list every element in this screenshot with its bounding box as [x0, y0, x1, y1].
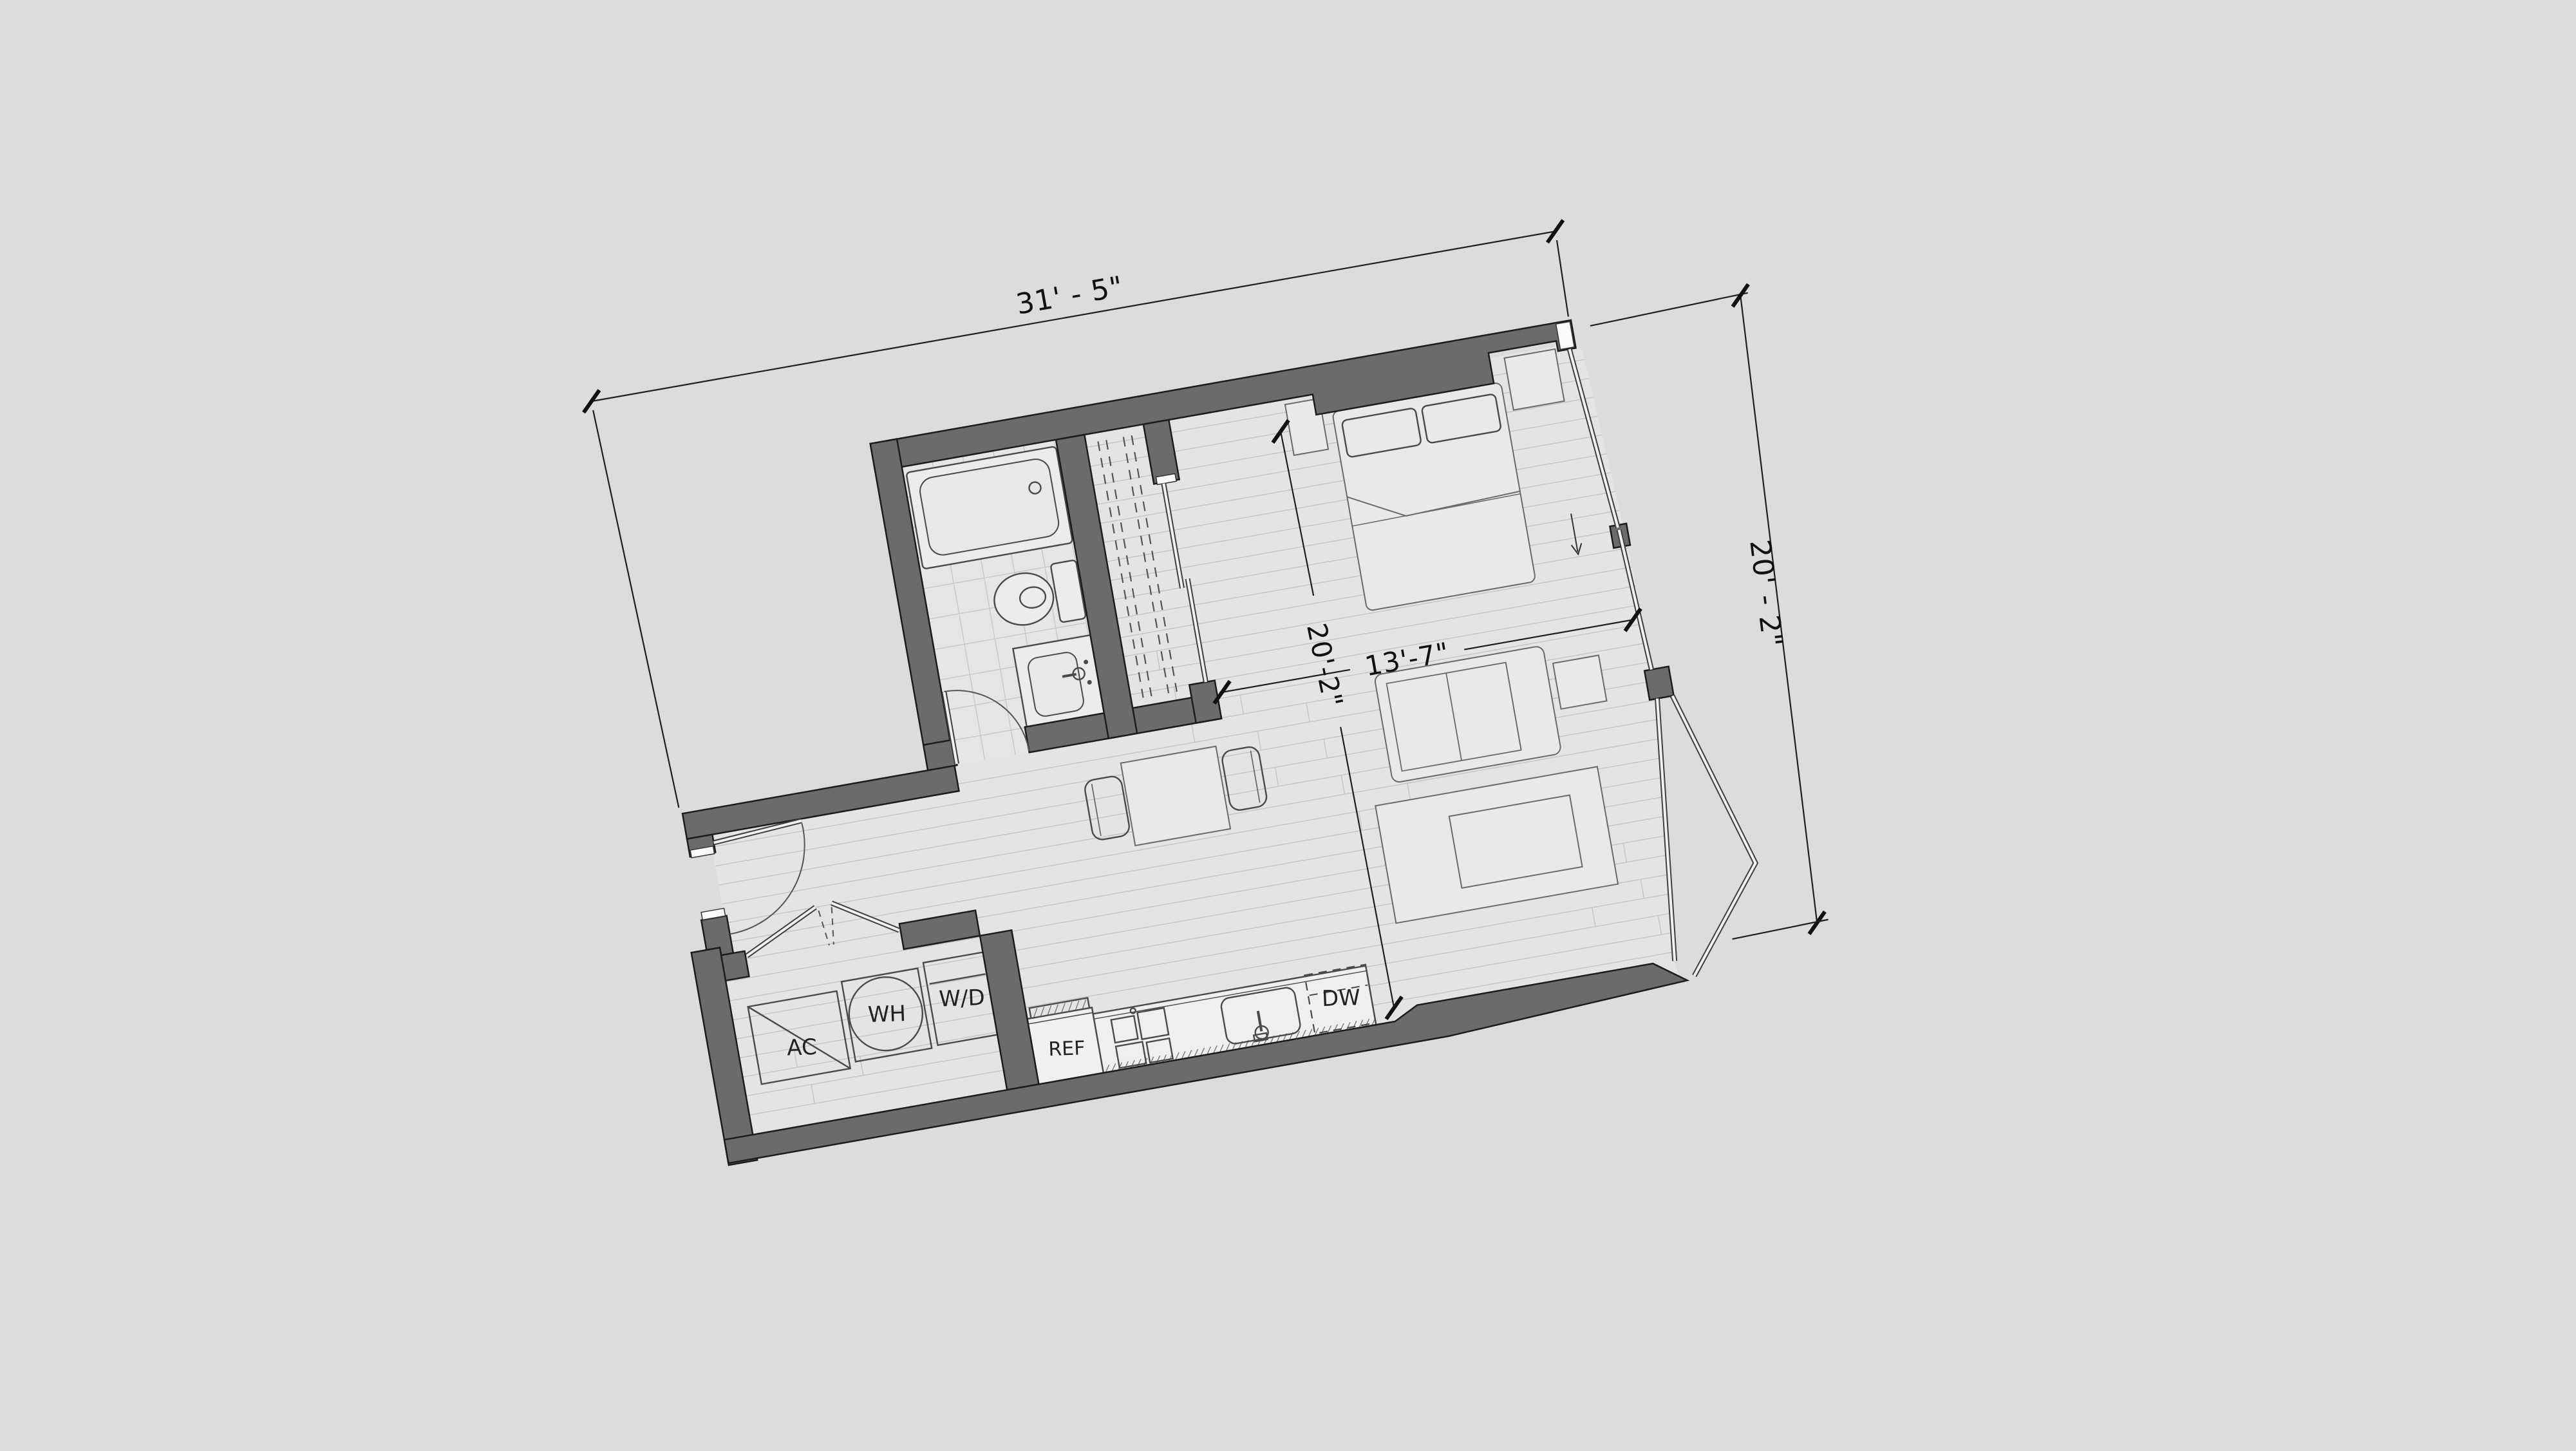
overall-height-dimension: 20' - 2" — [1743, 538, 1789, 649]
nightstand-right — [1505, 349, 1565, 410]
side-table — [1553, 655, 1606, 708]
floor-plan-canvas: 31' - 5" 20' - 2" 13'-7" 20'-2" AC WH W/… — [0, 0, 2576, 1451]
dishwasher-label: DW — [1321, 985, 1360, 1012]
floor-pattern-line — [809, 575, 812, 594]
dining-table — [1121, 746, 1230, 846]
bed — [1332, 382, 1536, 611]
door-jamb — [1644, 667, 1673, 700]
floor-plan-page: 31' - 5" 20' - 2" 13'-7" 20'-2" AC WH W/… — [0, 0, 2576, 1451]
floor-pattern-line — [791, 539, 794, 558]
overall-width-dimension: 31' - 5" — [1013, 270, 1125, 321]
utility-top-stub — [721, 951, 749, 981]
floor-pattern-line — [840, 511, 843, 530]
floor-pattern-line — [874, 583, 878, 602]
floor-pattern-line — [659, 523, 662, 542]
floor-pattern-line — [892, 619, 896, 638]
floor-pattern-line — [857, 547, 860, 566]
water-heater-label: WH — [867, 1001, 907, 1028]
floor-pattern-line — [773, 502, 776, 522]
washer-dryer-label: W/D — [939, 985, 986, 1012]
refrigerator-label: REF — [1048, 1037, 1086, 1061]
floor-pattern-line — [725, 531, 728, 550]
ac-label: AC — [787, 1034, 818, 1061]
floor-plan: 31' - 5" 20' - 2" 13'-7" 20'-2" AC WH W/… — [576, 163, 1868, 1167]
